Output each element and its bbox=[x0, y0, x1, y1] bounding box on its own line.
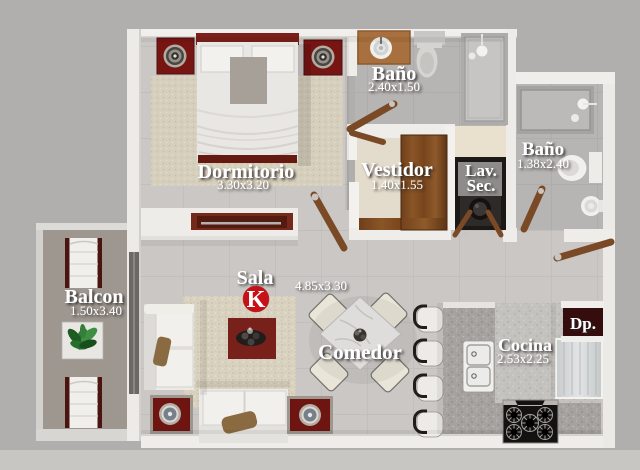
svg-text:2.40x1.50: 2.40x1.50 bbox=[368, 79, 420, 94]
svg-text:4.85x3.30: 4.85x3.30 bbox=[295, 278, 347, 293]
svg-text:Dp.: Dp. bbox=[570, 314, 596, 333]
svg-text:Comedor: Comedor bbox=[318, 340, 402, 364]
svg-text:3.30x3.20: 3.30x3.20 bbox=[217, 177, 269, 192]
svg-text:1.40x1.55: 1.40x1.55 bbox=[371, 177, 423, 192]
svg-text:Sec.: Sec. bbox=[467, 176, 496, 195]
svg-text:1.50x3.40: 1.50x3.40 bbox=[70, 303, 122, 318]
svg-text:Sala: Sala bbox=[237, 267, 274, 289]
svg-text:1.38x2.40: 1.38x2.40 bbox=[517, 156, 569, 171]
svg-text:2.53x2.25: 2.53x2.25 bbox=[497, 351, 549, 366]
svg-text:K: K bbox=[247, 287, 266, 313]
